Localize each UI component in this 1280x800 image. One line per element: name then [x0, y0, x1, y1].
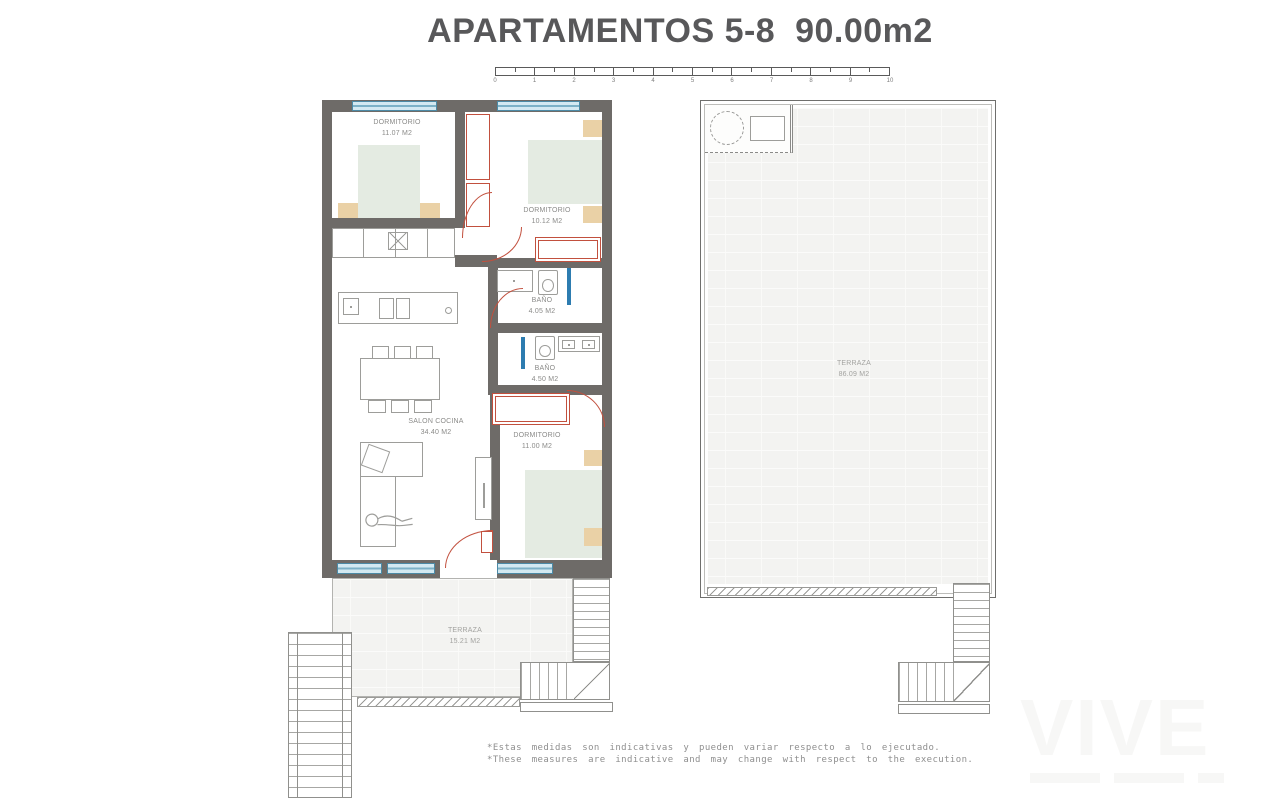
stair-treads	[521, 663, 574, 699]
wardrobe	[492, 393, 570, 425]
stair-flight	[898, 662, 990, 702]
pillow	[584, 528, 602, 546]
stair-flight	[953, 583, 990, 662]
scale-bar-tick-label: 1	[533, 78, 536, 84]
stair-landing	[898, 704, 990, 714]
scale-bar-tick-label: 7	[770, 78, 773, 84]
sink-basin	[582, 340, 595, 349]
scale-bar-cell	[654, 68, 693, 75]
stair-flight	[288, 632, 352, 798]
island-hob	[343, 298, 359, 315]
roof-terrace-plan: TERRAZA 86.09 M2	[700, 100, 996, 598]
disclaimer: *Estas medidas son indicativas y pueden …	[487, 742, 973, 766]
scale-bar-cell	[535, 68, 574, 75]
window	[337, 563, 382, 574]
stair-treads	[899, 663, 954, 701]
stair-rail	[297, 633, 298, 797]
watermark-tagline-bar	[1198, 773, 1224, 783]
apartment-floor-plan: DORMITORIO 11.07 M2 DORMITORIO 10.12 M2	[322, 100, 612, 578]
scale-bar: 012345678910	[495, 67, 890, 85]
room-label: DORMITORIO 11.07 M2	[362, 118, 432, 140]
room-label: DORMITORIO 10.12 M2	[512, 206, 582, 228]
scale-bar-tick-label: 5	[691, 78, 694, 84]
wall-segment	[322, 218, 465, 228]
room-label: SALON COCINA 34.40 M2	[400, 417, 472, 439]
person-figure	[364, 502, 416, 538]
counter-divider	[363, 229, 364, 257]
island-sink	[379, 298, 394, 319]
stove-icon	[388, 232, 408, 250]
scale-bar-cell	[575, 68, 614, 75]
scale-bar-cell	[772, 68, 811, 75]
scale-bar-ruler	[495, 67, 890, 76]
scale-bar-tick-label: 0	[493, 78, 496, 84]
scale-bar-cell	[693, 68, 732, 75]
island-sink	[396, 298, 410, 319]
disclaimer-es: *Estas medidas son indicativas y pueden …	[487, 742, 973, 754]
stair-diagonal	[574, 663, 610, 699]
watermark-tagline	[1030, 773, 1224, 783]
door-arc	[567, 390, 605, 427]
nightstand	[583, 120, 602, 137]
stair-rail	[342, 633, 343, 797]
nightstand	[584, 450, 602, 466]
tv-unit	[475, 457, 492, 520]
roof-rect-fixture	[750, 116, 785, 141]
watermark-tagline-bar	[1114, 773, 1184, 783]
kitchen-island	[338, 292, 458, 324]
wall-segment	[455, 112, 465, 228]
chair	[414, 400, 432, 413]
chair	[391, 400, 409, 413]
stair-landing	[520, 702, 613, 712]
room-label: DORMITORIO 11.00 M2	[502, 431, 572, 453]
disclaimer-en: *These measures are indicative and may c…	[487, 754, 973, 766]
toilet	[538, 270, 558, 295]
nightstand	[338, 203, 358, 218]
sink-basin	[562, 340, 575, 349]
room-label: TERRAZA 15.21 M2	[435, 626, 495, 648]
wardrobe	[535, 237, 601, 262]
stair-flight	[573, 578, 610, 662]
terrace-surface	[708, 108, 988, 584]
wardrobe	[466, 114, 490, 180]
door-arc	[482, 227, 522, 262]
bed	[528, 140, 602, 204]
room-label: BAÑO 4.05 M2	[510, 296, 574, 318]
room-label: TERRAZA 86.09 M2	[819, 359, 889, 381]
wall-segment	[322, 100, 332, 578]
scale-bar-tick-label: 6	[730, 78, 733, 84]
dining-table	[360, 358, 440, 400]
door-arc	[445, 530, 493, 568]
watermark-logo: VIVE	[1020, 688, 1210, 768]
plan-title: APARTAMENTOS 5-8 90.00m2	[427, 12, 933, 51]
vanity	[558, 336, 600, 352]
scale-bar-tick-label: 8	[809, 78, 812, 84]
tv-line	[483, 483, 485, 508]
scale-bar-cell	[496, 68, 535, 75]
room-label: BAÑO 4.50 M2	[513, 364, 577, 386]
scale-bar-cell	[614, 68, 653, 75]
watermark-tagline-bar	[1030, 773, 1100, 783]
bed	[358, 145, 420, 218]
scale-bar-tick-label: 2	[572, 78, 575, 84]
chair	[368, 400, 386, 413]
nightstand	[420, 203, 440, 218]
window	[497, 563, 553, 574]
hatch-strip	[707, 587, 937, 596]
window	[497, 101, 580, 111]
counter-divider	[427, 229, 428, 257]
roof-circle-fixture	[710, 111, 744, 145]
scale-bar-tick-label: 4	[651, 78, 654, 84]
hatch-strip	[357, 697, 520, 707]
scale-bar-cell	[732, 68, 771, 75]
wall-segment	[602, 100, 612, 578]
scale-bar-numbers: 012345678910	[495, 76, 890, 85]
floorplan-canvas: APARTAMENTOS 5-8 90.00m2 012345678910	[0, 0, 1280, 800]
scale-bar-tick-label: 3	[612, 78, 615, 84]
window	[387, 563, 435, 574]
faucet-icon	[445, 307, 452, 314]
scale-bar-cell	[851, 68, 889, 75]
stair-diagonal	[954, 663, 990, 701]
stair-flight	[520, 662, 610, 700]
toilet	[535, 336, 555, 360]
scale-bar-tick-label: 9	[849, 78, 852, 84]
scale-bar-tick-label: 10	[887, 78, 894, 84]
nightstand	[583, 206, 602, 223]
window	[352, 101, 437, 111]
scale-bar-cell	[811, 68, 850, 75]
roof-enclosure	[705, 105, 793, 153]
